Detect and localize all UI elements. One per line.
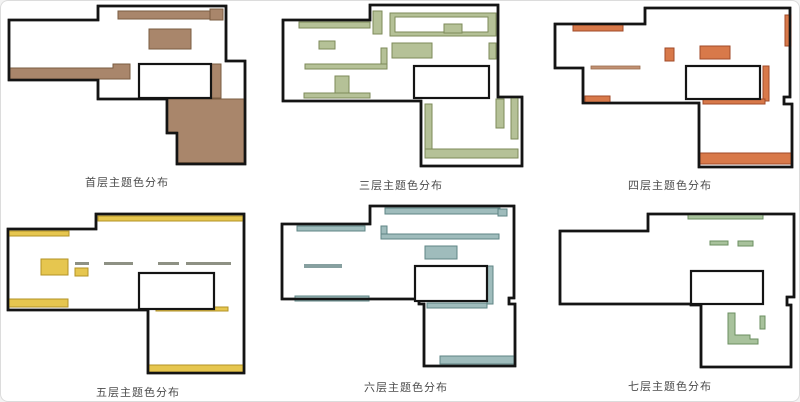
floor-plan-fourth — [533, 1, 800, 171]
inner-room — [139, 273, 214, 309]
floor-caption-seventh: 七层主题色分布 — [628, 378, 712, 394]
floor-plan-seventh — [533, 201, 800, 379]
floor-plan-third — [267, 1, 533, 171]
inner-room — [139, 64, 211, 98]
floor-theme-color-figure: 首层主题色分布 三层主题色分布 四层主题色分布 五层主题色分布 六层主题色分布 … — [0, 0, 800, 402]
floor-plan-drawing-fifth — [1, 201, 267, 379]
floor-plan-drawing-seventh — [533, 201, 800, 379]
inner-room — [686, 66, 760, 99]
floor-caption-fourth: 四层主题色分布 — [628, 177, 712, 193]
floor-caption-ground: 首层主题色分布 — [85, 174, 169, 190]
inner-room — [691, 271, 763, 304]
floor-caption-sixth: 六层主题色分布 — [364, 379, 448, 395]
neutral-bar — [158, 262, 179, 265]
inner-room — [414, 66, 489, 98]
floor-plan-drawing-sixth — [267, 201, 533, 379]
tan-bar — [591, 66, 640, 69]
floor-plan-sixth — [267, 201, 533, 379]
floor-plan-drawing-fourth — [533, 1, 800, 171]
teal-bar — [304, 264, 342, 268]
floor-plan-ground — [1, 1, 267, 171]
inner-room — [415, 266, 487, 301]
neutral-bar — [75, 262, 89, 265]
floor-plan-drawing-ground — [1, 1, 267, 171]
floor-plan-fifth — [1, 201, 267, 379]
floor-caption-third: 三层主题色分布 — [359, 177, 443, 193]
neutral-bar — [186, 262, 231, 265]
neutral-bar — [104, 262, 133, 265]
floor-caption-fifth: 五层主题色分布 — [96, 384, 180, 400]
floor-plan-drawing-third — [267, 1, 533, 171]
